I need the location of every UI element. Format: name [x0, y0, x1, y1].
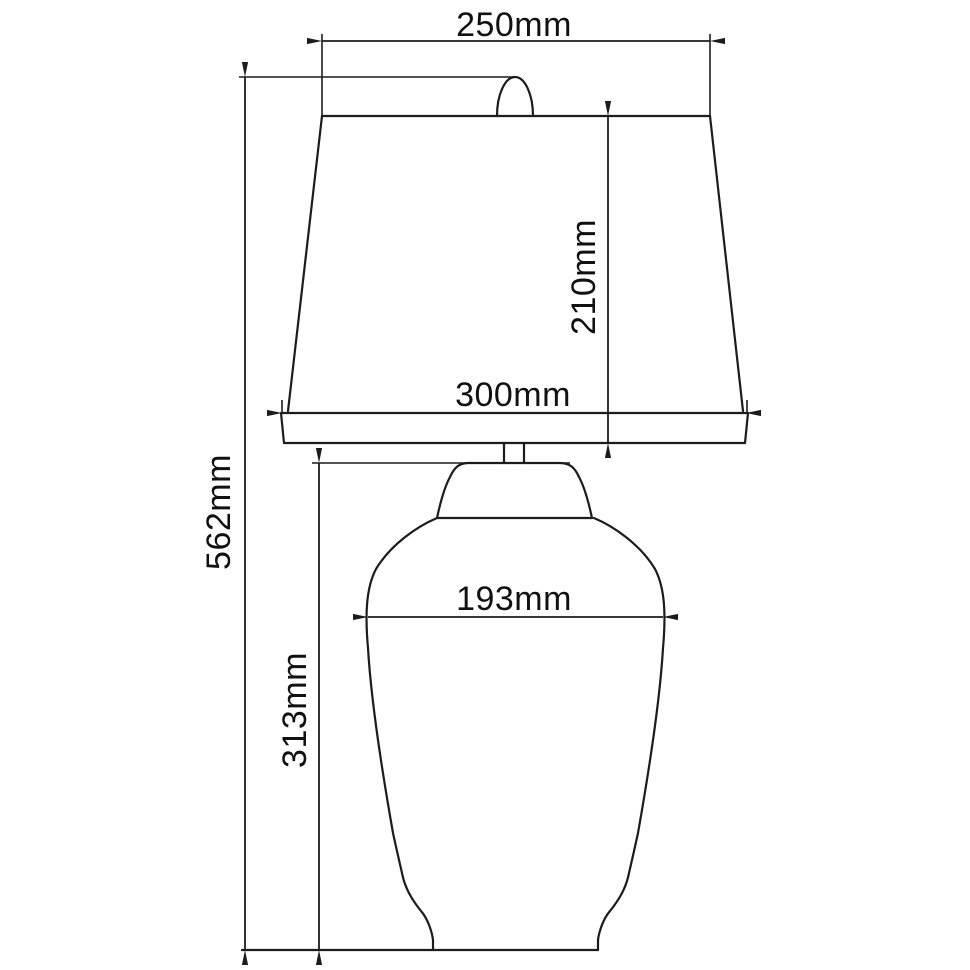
lampshade-left-side	[288, 116, 322, 411]
dim-label-250mm: 250mm	[456, 6, 572, 44]
dim-label-313mm: 313mm	[276, 652, 314, 768]
dim-label-210mm: 210mm	[565, 219, 603, 335]
body-cap	[437, 463, 592, 518]
technical-drawing-svg: 250mm 562mm 210mm 300mm 313mm 193mm	[0, 0, 970, 970]
dimension-shade-top-width: 250mm	[322, 6, 710, 116]
body-left-profile	[367, 518, 437, 950]
body-right-profile	[594, 518, 664, 950]
finial	[497, 77, 533, 116]
dim-label-193mm: 193mm	[456, 580, 572, 618]
dim-label-562mm: 562mm	[200, 454, 238, 570]
lampshade-right-side	[710, 116, 743, 411]
dimension-base-width: 193mm	[368, 580, 663, 618]
dimension-shade-height: 210mm	[565, 116, 608, 443]
dim-label-300mm: 300mm	[455, 376, 571, 414]
lamp-drawing	[242, 77, 748, 950]
lampshade-bottom-rim	[281, 413, 748, 443]
dimension-total-height: 562mm	[200, 77, 514, 950]
dimension-base-height: 313mm	[276, 463, 570, 950]
lamp-dimension-diagram: 250mm 562mm 210mm 300mm 313mm 193mm	[0, 0, 970, 970]
dimension-shade-bottom-width: 300mm	[282, 376, 746, 414]
